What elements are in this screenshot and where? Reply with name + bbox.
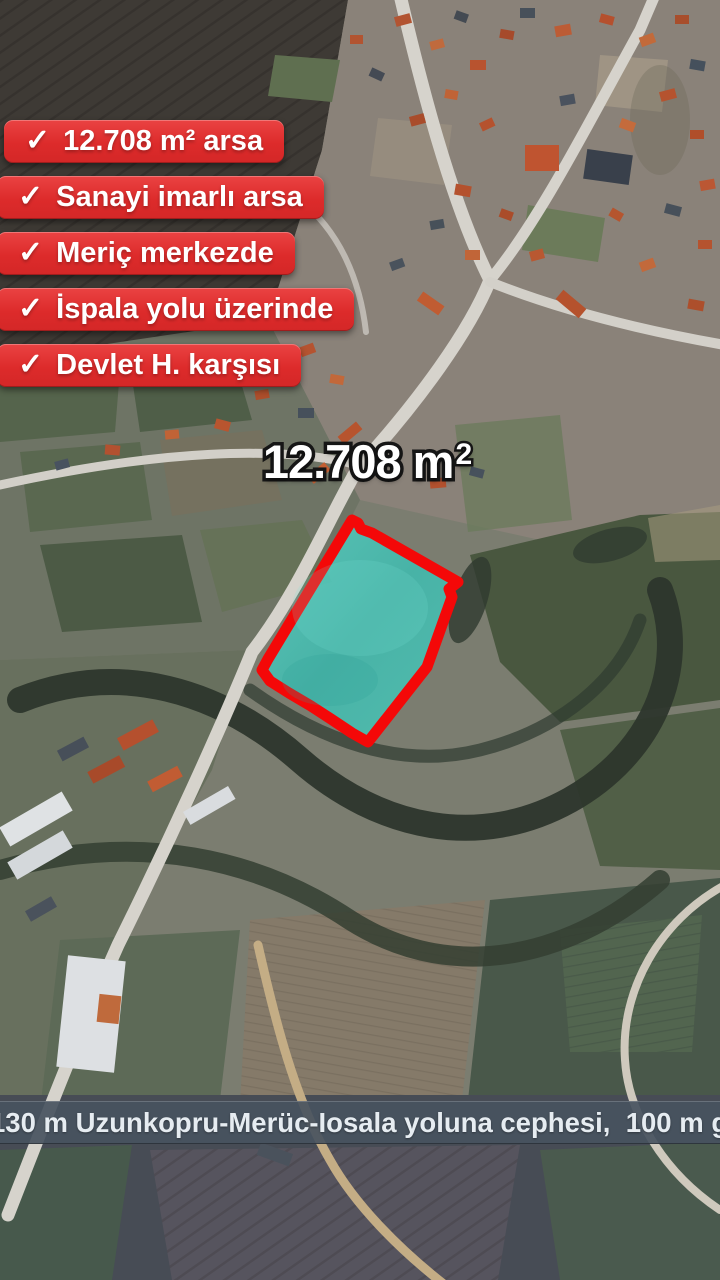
check-icon: ✓ [25, 123, 50, 158]
listing-image: ✓ 12.708 m² arsa ✓ Sanayi imarlı arsa ✓ … [0, 0, 720, 1280]
check-icon: ✓ [18, 291, 43, 326]
check-icon: ✓ [18, 347, 43, 382]
badge-label: 12.708 m² arsa [63, 125, 263, 158]
feature-badge-hospital: ✓ Devlet H. karşısı [0, 344, 301, 387]
badge-label: Meriç merkezde [56, 237, 274, 270]
feature-badge-road: ✓ İspala yolu üzerinde [0, 288, 354, 331]
check-icon: ✓ [18, 235, 43, 270]
feature-badges: ✓ 12.708 m² arsa ✓ Sanayi imarlı arsa ✓ … [0, 120, 354, 387]
info-bar: 130 m Uzunkopru-Merüc-Iosala yoluna ceph… [0, 1101, 720, 1144]
area-exponent: 2 [455, 438, 471, 471]
feature-badge-location: ✓ Meriç merkezde [0, 232, 295, 275]
area-label: 12.708 m2 [252, 434, 482, 489]
feature-badge-zoning: ✓ Sanayi imarlı arsa [0, 176, 324, 219]
area-value: 12.708 m [263, 435, 454, 488]
badge-label: Devlet H. karşısı [56, 349, 280, 382]
badge-label: İspala yolu üzerinde [56, 293, 333, 326]
info-bar-text: 130 m Uzunkopru-Merüc-Iosala yoluna ceph… [0, 1107, 720, 1139]
feature-badge-area: ✓ 12.708 m² arsa [4, 120, 284, 163]
check-icon: ✓ [18, 179, 43, 214]
badge-label: Sanayi imarlı arsa [56, 181, 303, 214]
